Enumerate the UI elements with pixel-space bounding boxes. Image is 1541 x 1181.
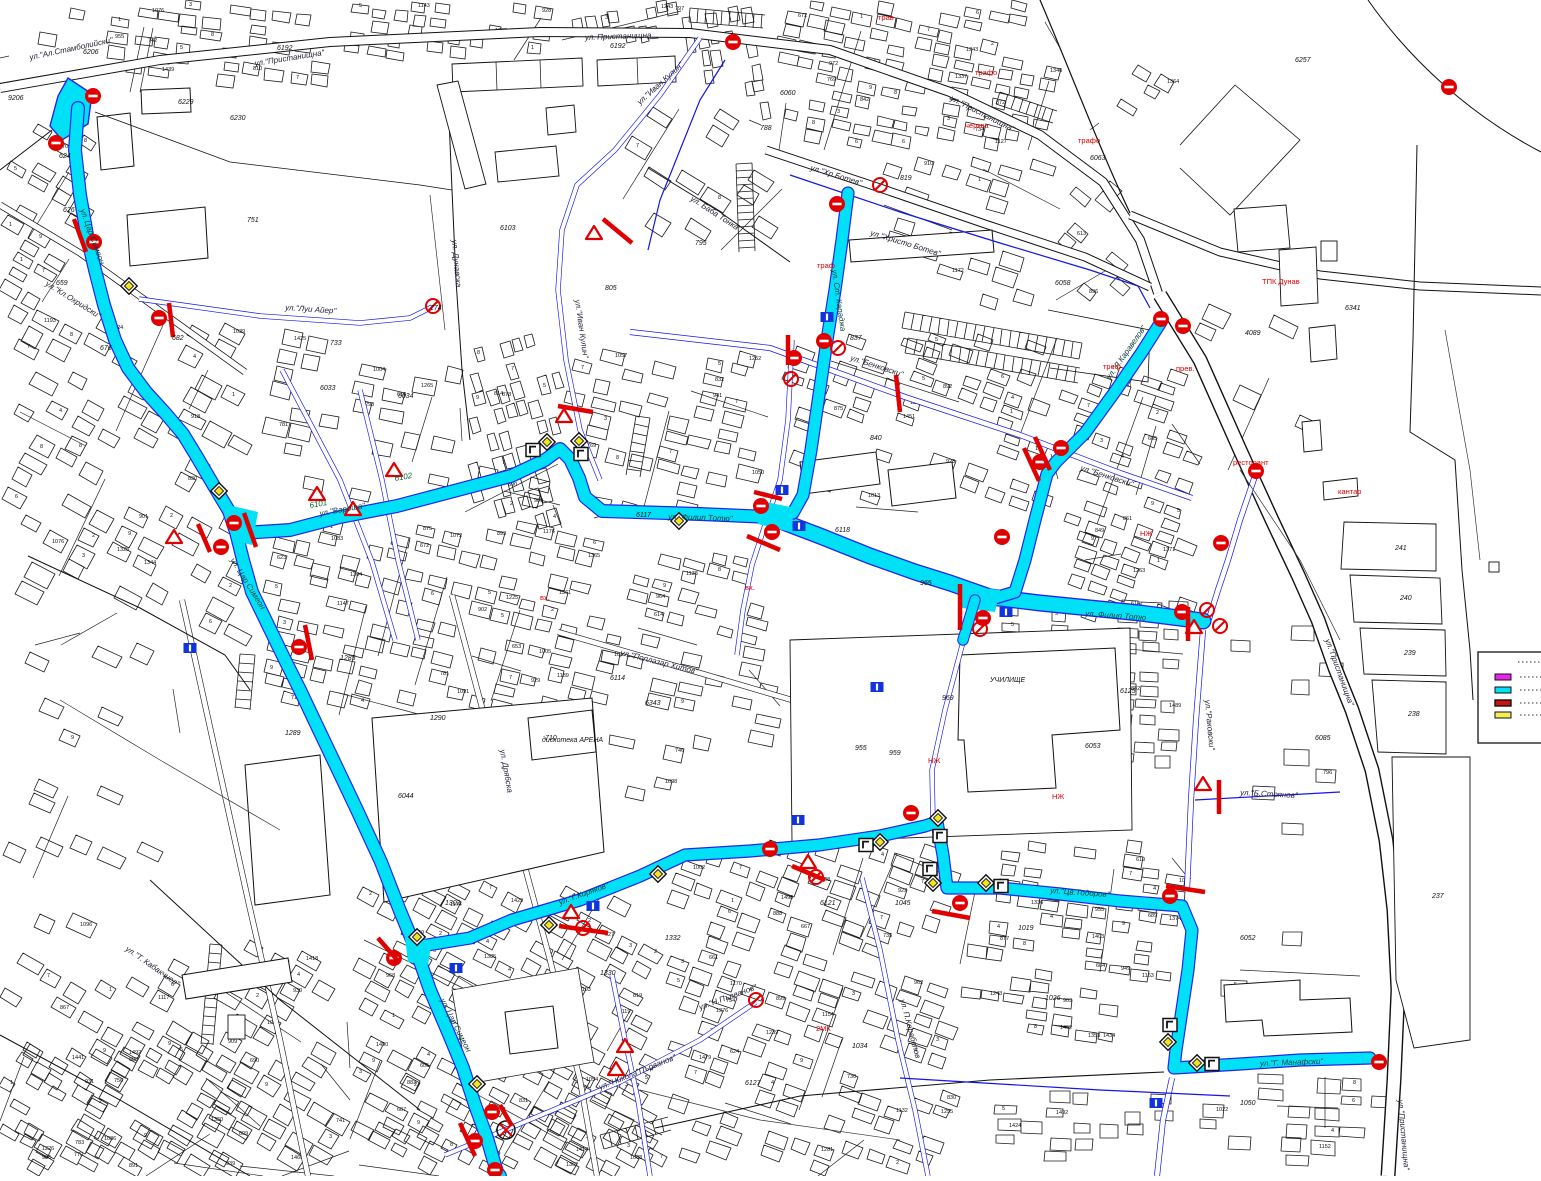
svg-text:3: 3 [629,943,632,949]
svg-text:7: 7 [636,143,639,149]
svg-text:837: 837 [850,335,863,342]
svg-text:735: 735 [883,933,892,939]
svg-text:877: 877 [1000,936,1009,942]
svg-text:вх.: вх. [745,583,755,592]
svg-text:6044: 6044 [398,793,414,800]
svg-text:6033: 6033 [320,385,336,392]
svg-text:4089: 4089 [1245,330,1261,337]
svg-text:237: 237 [1431,893,1445,900]
svg-text:1361: 1361 [559,590,571,596]
svg-text:1243: 1243 [661,4,673,10]
svg-text:1005: 1005 [539,649,551,655]
svg-text:1091: 1091 [457,689,469,695]
svg-text:1: 1 [232,392,235,398]
svg-text:1255: 1255 [941,1109,953,1115]
svg-text:6257: 6257 [1295,57,1312,64]
svg-text:2: 2 [551,607,554,613]
svg-text:9: 9 [663,583,666,589]
svg-text:8: 8 [894,90,897,96]
svg-text:8: 8 [477,350,480,356]
svg-text:7: 7 [880,915,883,921]
svg-text:6053: 6053 [1085,743,1101,750]
svg-text:909: 909 [228,1039,237,1045]
svg-text:1371: 1371 [1163,547,1175,553]
svg-text:8: 8 [211,32,214,38]
svg-text:8: 8 [1353,1080,1356,1086]
svg-text:1: 1 [392,1013,395,1019]
svg-text:902: 902 [478,607,487,613]
svg-text:9: 9 [71,735,74,741]
svg-text:1050: 1050 [752,470,764,476]
svg-text:2: 2 [896,1160,899,1166]
svg-text:613: 613 [1077,231,1086,237]
svg-text:733: 733 [330,340,342,347]
svg-text:6063: 6063 [1090,155,1106,162]
svg-text:955: 955 [1095,907,1104,913]
svg-text:608: 608 [129,1057,138,1063]
svg-text:774: 774 [430,305,442,312]
svg-text:6060: 6060 [780,90,796,97]
svg-text:1353: 1353 [1088,1033,1100,1039]
svg-text:1276: 1276 [716,1008,728,1014]
svg-text:4: 4 [59,408,62,414]
svg-text:872: 872 [996,100,1005,106]
svg-text:830: 830 [947,1095,956,1101]
svg-text:901: 901 [139,514,148,520]
svg-text:7: 7 [511,366,514,372]
svg-text:7: 7 [660,1154,663,1160]
svg-text:дискотека АРЕНА: дискотека АРЕНА [542,736,603,744]
svg-text:1441: 1441 [72,1055,84,1061]
svg-text:7: 7 [47,973,50,979]
svg-text:1226: 1226 [42,1146,54,1152]
svg-text:9: 9 [39,234,42,240]
svg-text:ресторант: ресторант [1233,458,1269,467]
svg-text:1004: 1004 [373,367,385,373]
svg-text:875: 875 [423,526,432,532]
svg-text:8: 8 [718,567,721,573]
svg-text:1332: 1332 [665,935,681,942]
svg-text:6: 6 [209,619,212,625]
svg-text:796: 796 [1323,770,1332,776]
svg-text:прев.: прев. [1176,364,1194,373]
svg-text:1362: 1362 [566,1162,578,1168]
svg-text:7: 7 [1087,403,1090,409]
svg-text:1350: 1350 [211,1117,223,1123]
svg-text:4: 4 [1331,1128,1334,1134]
svg-text:черква: черква [965,121,989,130]
svg-text:треф: треф [1103,362,1121,371]
svg-text:1189: 1189 [557,673,569,679]
svg-text:1072: 1072 [450,533,462,539]
svg-text:605: 605 [420,1063,429,1069]
svg-text:814: 814 [494,391,503,397]
svg-text:955: 955 [855,745,867,752]
svg-text:805: 805 [605,285,617,292]
svg-text:1243: 1243 [990,991,1002,997]
svg-text:929: 929 [531,678,540,684]
svg-text:4: 4 [881,852,884,858]
svg-text:9: 9 [103,1048,106,1054]
svg-text:3: 3 [837,109,840,115]
svg-text:8: 8 [1023,941,1026,947]
svg-text:6: 6 [431,591,434,597]
svg-text:7: 7 [296,75,299,81]
svg-text:941: 941 [713,393,722,399]
svg-text:1: 1 [20,257,23,263]
svg-text:1050: 1050 [1240,1100,1256,1107]
svg-text:6: 6 [855,139,858,145]
svg-text:742: 742 [148,38,157,44]
svg-text:1492: 1492 [1056,1110,1068,1116]
svg-text:5: 5 [1177,508,1180,514]
svg-text:9: 9 [476,395,479,401]
svg-text:вх.: вх. [540,593,550,602]
svg-text:769: 769 [827,77,836,83]
svg-text:1424: 1424 [1009,1123,1021,1129]
svg-text:1429: 1429 [511,898,523,904]
svg-text:9: 9 [800,1058,803,1064]
svg-text:659: 659 [56,280,68,287]
svg-text:НЖ: НЖ [1052,792,1064,801]
svg-text:930: 930 [293,988,302,994]
svg-text:849: 849 [1095,528,1104,534]
svg-text:5: 5 [14,166,17,172]
svg-text:6058: 6058 [1055,280,1071,287]
svg-text:756: 756 [114,1078,123,1084]
svg-text:2: 2 [510,501,513,507]
svg-text:1057: 1057 [615,353,627,359]
svg-text:687: 687 [397,1107,406,1113]
svg-text:1403: 1403 [1092,934,1104,940]
svg-text:4: 4 [1011,395,1014,401]
svg-text:888: 888 [773,911,782,917]
svg-text:240: 240 [1399,595,1412,602]
svg-text:1002: 1002 [693,865,705,871]
svg-text:6343: 6343 [645,700,661,707]
svg-text:1: 1 [9,222,12,228]
svg-text:730: 730 [847,1074,856,1080]
svg-text:1265: 1265 [421,383,433,389]
svg-text:6230: 6230 [230,115,246,122]
svg-text:6: 6 [1001,374,1004,380]
svg-text:896: 896 [1089,289,1098,295]
svg-text:7: 7 [921,879,924,885]
svg-text:1172: 1172 [952,268,964,274]
svg-text:3: 3 [625,1082,628,1088]
svg-text:1076: 1076 [152,8,164,14]
svg-text:1096: 1096 [80,922,92,928]
svg-text:1425: 1425 [294,336,306,342]
svg-text:986: 986 [42,1155,51,1161]
svg-text:922: 922 [898,888,907,894]
svg-text:689: 689 [1148,913,1157,919]
svg-text:6103: 6103 [500,225,516,232]
svg-text:614: 614 [654,612,663,618]
svg-text:9: 9 [681,699,684,705]
svg-text:5: 5 [180,45,183,51]
svg-text:3: 3 [82,553,85,559]
svg-text:239: 239 [1403,650,1416,657]
svg-text:1152: 1152 [1319,1144,1331,1150]
svg-text:6192: 6192 [610,43,626,50]
svg-text:6121: 6121 [820,900,836,907]
svg-text:1418: 1418 [306,956,318,962]
svg-text:8: 8 [812,120,815,126]
svg-text:6114: 6114 [610,675,625,682]
svg-text:8: 8 [450,1142,453,1148]
svg-text:8: 8 [616,455,619,461]
svg-text:трафо: трафо [1078,136,1100,145]
svg-text:5: 5 [718,361,721,367]
svg-text:1489: 1489 [1169,703,1181,709]
svg-text:6118: 6118 [835,527,850,534]
svg-text:1414: 1414 [576,1147,588,1153]
svg-text:962: 962 [914,980,923,986]
svg-text:842: 842 [860,97,869,103]
svg-text:1434: 1434 [1103,1033,1115,1039]
svg-text:1252: 1252 [749,356,761,362]
svg-text:1034: 1034 [852,1043,868,1050]
svg-text:1385: 1385 [484,954,496,960]
svg-text:830: 830 [188,476,197,482]
svg-text:1451: 1451 [903,414,915,420]
svg-text:1243: 1243 [966,47,978,53]
svg-text:1344: 1344 [144,560,156,566]
svg-text:2МК: 2МК [816,1024,831,1033]
svg-text:3: 3 [936,1037,939,1043]
svg-text:624: 624 [59,153,71,160]
svg-text:972: 972 [829,61,838,67]
svg-text:4: 4 [486,939,489,945]
svg-text:1281: 1281 [821,1147,833,1153]
svg-text:2: 2 [1156,410,1159,416]
svg-text:819: 819 [633,993,642,999]
svg-text:5: 5 [922,376,925,382]
svg-text:3: 3 [627,1143,630,1149]
svg-text:9: 9 [1091,536,1094,542]
svg-text:4: 4 [508,967,511,973]
svg-text:9: 9 [270,665,273,671]
svg-text:1302: 1302 [445,900,461,907]
svg-text:672: 672 [798,13,807,19]
svg-text:9: 9 [372,1058,375,1064]
svg-text:609: 609 [239,1131,248,1137]
svg-text:626: 626 [63,207,75,214]
svg-text:1439: 1439 [162,67,174,73]
svg-text:9: 9 [168,1041,171,1047]
svg-text:910: 910 [924,161,933,167]
svg-text:949: 949 [1121,966,1130,972]
svg-text:746: 746 [675,748,684,754]
svg-text:6192: 6192 [277,45,293,52]
svg-text:1: 1 [1157,558,1160,564]
svg-text:6341: 6341 [1345,305,1361,312]
svg-text:5: 5 [543,383,546,389]
svg-text:751: 751 [247,217,259,224]
svg-text:8: 8 [79,443,82,449]
svg-text:5: 5 [275,584,278,590]
svg-text:672: 672 [420,543,429,549]
svg-text:7: 7 [927,27,930,33]
svg-text:3: 3 [329,1134,332,1140]
svg-text:955: 955 [115,34,124,40]
svg-text:3: 3 [359,1069,362,1075]
svg-text:траф: траф [817,261,835,270]
svg-text:6127: 6127 [745,1080,762,1087]
svg-text:1490: 1490 [376,1042,388,1048]
svg-text:781: 781 [440,671,449,677]
svg-text:7: 7 [735,399,738,405]
svg-text:трафо: трафо [975,68,997,77]
svg-text:788: 788 [760,125,772,132]
svg-text:1138: 1138 [686,571,698,577]
svg-text:1289: 1289 [285,730,301,737]
svg-text:3: 3 [1100,438,1103,444]
svg-text:5: 5 [1011,622,1014,628]
svg-text:797: 797 [675,6,684,12]
svg-text:690: 690 [250,1058,259,1064]
svg-text:1: 1 [118,17,121,23]
svg-text:1: 1 [10,1080,13,1086]
svg-text:7: 7 [489,885,492,891]
svg-text:8: 8 [1034,1024,1037,1030]
svg-text:1290: 1290 [430,715,446,722]
svg-text:1304: 1304 [350,572,362,578]
svg-text:685: 685 [1148,436,1157,442]
svg-text:3: 3 [283,620,286,626]
svg-text:891: 891 [129,1163,138,1169]
svg-text:893: 893 [497,531,506,537]
svg-text:9: 9 [128,531,131,537]
svg-text:1026: 1026 [1045,995,1061,1002]
svg-text:9: 9 [417,1120,420,1126]
svg-text:1076: 1076 [52,539,64,545]
svg-text:664: 664 [1096,963,1105,969]
svg-text:1127: 1127 [995,139,1007,145]
svg-text:7: 7 [470,1124,473,1130]
svg-text:9: 9 [869,85,872,91]
svg-text:1147: 1147 [337,601,349,607]
svg-text:875: 875 [834,406,843,412]
svg-text:8: 8 [718,195,721,201]
svg-text:6: 6 [728,909,731,915]
svg-text:7: 7 [669,449,672,455]
svg-text:1163: 1163 [1142,973,1154,979]
svg-text:2: 2 [991,41,994,47]
svg-text:1337: 1337 [955,74,967,80]
svg-text:2: 2 [369,891,372,897]
svg-text:1: 1 [860,14,863,20]
svg-text:9: 9 [1122,921,1125,927]
svg-text:НЖ: НЖ [928,756,940,765]
svg-text:3: 3 [604,416,607,422]
svg-text:1285: 1285 [340,655,356,662]
svg-text:968: 968 [386,973,395,979]
svg-text:918: 918 [191,414,200,420]
svg-text:1039: 1039 [233,329,245,335]
svg-text:241: 241 [1394,545,1407,552]
svg-text:2: 2 [229,583,232,589]
svg-text:928: 928 [542,8,551,14]
svg-text:7: 7 [694,1070,697,1076]
svg-text:1086: 1086 [104,1136,116,1142]
svg-text:1263: 1263 [1133,568,1145,574]
svg-text:1498: 1498 [781,895,793,901]
svg-text:4: 4 [553,514,556,520]
svg-text:2: 2 [256,993,259,999]
svg-text:4: 4 [1121,454,1124,460]
svg-text:959: 959 [889,750,901,757]
svg-text:5: 5 [180,1047,183,1053]
svg-text:6: 6 [902,139,905,145]
svg-text:781: 781 [279,422,288,428]
svg-text:1022: 1022 [1216,1107,1228,1113]
svg-text:1: 1 [731,898,734,904]
svg-text:6: 6 [593,540,596,546]
svg-text:6052: 6052 [1240,935,1256,942]
svg-text:4: 4 [193,354,196,360]
svg-text:5: 5 [935,337,938,343]
svg-text:1364: 1364 [1167,79,1179,85]
svg-text:741: 741 [336,1118,345,1124]
svg-text:7: 7 [42,268,45,274]
svg-text:1239: 1239 [766,1030,778,1036]
svg-text:8: 8 [84,138,87,144]
svg-text:3: 3 [189,2,192,8]
svg-text:831: 831 [519,1098,528,1104]
svg-text:3: 3 [605,15,608,21]
svg-text:1225: 1225 [506,595,518,601]
svg-text:8: 8 [40,444,43,450]
svg-text:783: 783 [75,1140,84,1146]
svg-text:1346: 1346 [1050,68,1062,74]
svg-text:1154: 1154 [822,1012,834,1018]
svg-text:7: 7 [509,675,512,681]
svg-text:9: 9 [265,1082,268,1088]
svg-text:4: 4 [361,698,364,704]
svg-text:4: 4 [1153,886,1156,892]
svg-text:7: 7 [581,365,584,371]
svg-text:6117: 6117 [636,512,652,519]
svg-text:899: 899 [776,996,785,1002]
svg-text:1008: 1008 [630,1155,642,1161]
svg-text:7: 7 [27,344,30,350]
svg-text:5: 5 [677,978,680,984]
svg-text:2: 2 [92,533,95,539]
svg-text:9206: 9206 [8,95,24,102]
svg-text:7: 7 [739,865,742,871]
svg-text:1492: 1492 [129,1050,141,1056]
svg-text:9: 9 [144,1133,147,1139]
svg-text:1: 1 [978,177,981,183]
svg-text:5: 5 [359,3,362,9]
svg-text:969: 969 [942,695,954,702]
svg-text:1132: 1132 [896,1108,908,1114]
svg-text:2: 2 [414,1082,417,1088]
svg-text:1193: 1193 [44,318,56,324]
svg-text:1: 1 [109,987,112,993]
svg-text:5: 5 [1002,1106,1005,1112]
svg-text:3: 3 [852,991,855,997]
svg-text:964: 964 [656,594,665,600]
svg-text:2: 2 [654,949,657,955]
svg-text:819: 819 [900,175,912,182]
svg-text:1330: 1330 [600,970,616,977]
svg-text:1013: 1013 [868,493,880,499]
svg-text:1054: 1054 [586,1077,598,1083]
svg-text:2: 2 [99,1099,102,1105]
